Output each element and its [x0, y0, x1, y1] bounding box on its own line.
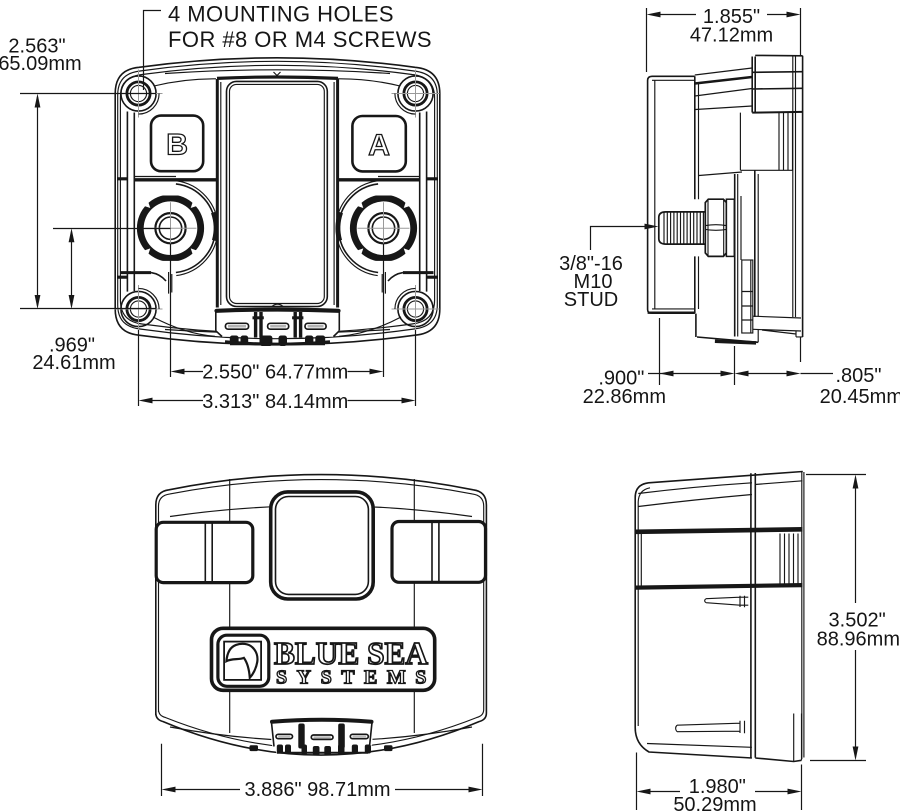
svg-text:65.09mm: 65.09mm: [0, 53, 82, 75]
svg-text:22.86mm: 22.86mm: [583, 386, 666, 408]
svg-text:2.550" 64.77mm: 2.550" 64.77mm: [202, 362, 348, 384]
svg-text:FOR #8 OR M4 SCREWS: FOR #8 OR M4 SCREWS: [168, 27, 432, 52]
svg-text:.805": .805": [835, 365, 881, 387]
svg-text:B: B: [166, 129, 188, 162]
svg-text:88.96mm: 88.96mm: [817, 629, 900, 651]
svg-text:SYSTEMS: SYSTEMS: [276, 666, 436, 688]
svg-text:A: A: [368, 129, 390, 162]
svg-text:24.61mm: 24.61mm: [32, 352, 115, 374]
svg-text:47.12mm: 47.12mm: [690, 25, 773, 47]
svg-text:3.886" 98.71mm: 3.886" 98.71mm: [244, 779, 390, 801]
svg-text:50.29mm: 50.29mm: [673, 794, 756, 811]
svg-text:4 MOUNTING HOLES: 4 MOUNTING HOLES: [168, 2, 394, 27]
svg-text:3.313" 84.14mm: 3.313" 84.14mm: [202, 391, 348, 413]
svg-text:20.45mm: 20.45mm: [820, 386, 900, 408]
svg-text:STUD: STUD: [564, 289, 618, 311]
